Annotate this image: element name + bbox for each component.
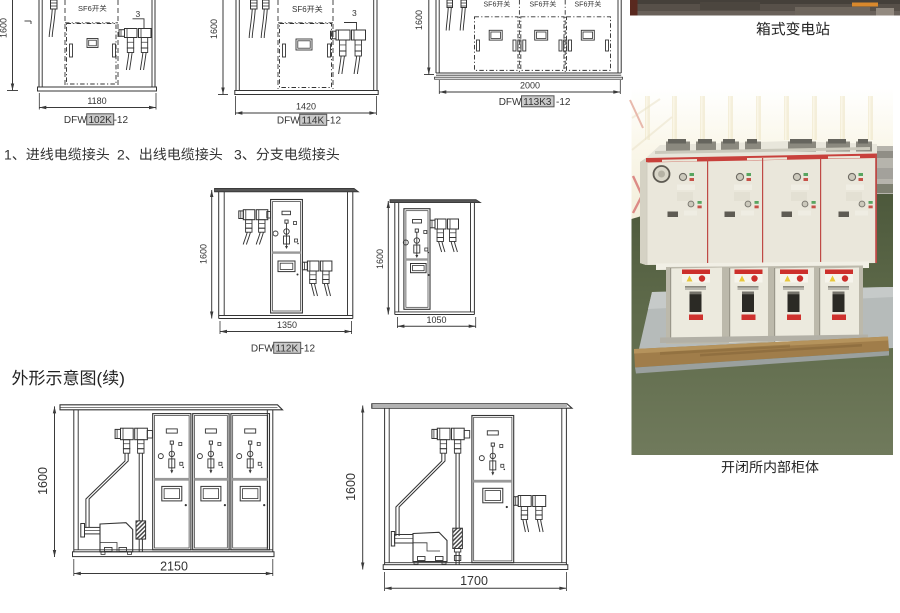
svg-text:DFW: DFW xyxy=(277,116,300,127)
svg-text:2: 2 xyxy=(117,146,125,162)
svg-text:SF6: SF6 xyxy=(484,2,497,9)
svg-text:1: 1 xyxy=(4,146,12,162)
svg-text:2150: 2150 xyxy=(160,560,188,574)
svg-text:DFW: DFW xyxy=(499,97,522,108)
svg-text:1600: 1600 xyxy=(414,10,424,30)
svg-text:): ) xyxy=(119,369,125,388)
svg-text:DFW: DFW xyxy=(64,115,87,126)
svg-text:3: 3 xyxy=(352,8,357,18)
svg-text:-12: -12 xyxy=(556,97,571,108)
svg-text:1600: 1600 xyxy=(375,249,385,269)
svg-text:DFW: DFW xyxy=(251,344,274,355)
svg-text:1050: 1050 xyxy=(426,315,446,325)
svg-text:1350: 1350 xyxy=(277,320,297,330)
svg-text:3: 3 xyxy=(234,146,242,162)
svg-text:2000: 2000 xyxy=(520,81,540,91)
svg-text:3: 3 xyxy=(136,9,141,19)
svg-text:-12: -12 xyxy=(114,115,129,126)
svg-text:SF6: SF6 xyxy=(78,4,92,13)
svg-text:1700: 1700 xyxy=(460,574,488,588)
svg-text:-12: -12 xyxy=(327,116,342,127)
svg-text:(: ( xyxy=(97,369,103,388)
svg-text:SF6: SF6 xyxy=(575,2,588,9)
svg-text:114K: 114K xyxy=(302,116,325,127)
svg-text:1600: 1600 xyxy=(344,473,358,501)
svg-text:102K: 102K xyxy=(89,115,113,126)
svg-text:112K: 112K xyxy=(276,344,299,355)
svg-text:1600: 1600 xyxy=(199,244,209,264)
svg-text:SF6: SF6 xyxy=(292,5,307,14)
svg-text:1420: 1420 xyxy=(296,102,316,112)
svg-text:1600: 1600 xyxy=(36,467,50,495)
svg-text:SF6: SF6 xyxy=(530,2,543,9)
svg-text:1600: 1600 xyxy=(0,18,9,38)
svg-text:113K3: 113K3 xyxy=(523,97,552,108)
svg-text:1600: 1600 xyxy=(209,19,219,39)
svg-text:-12: -12 xyxy=(301,344,316,355)
svg-text:1180: 1180 xyxy=(87,96,106,106)
